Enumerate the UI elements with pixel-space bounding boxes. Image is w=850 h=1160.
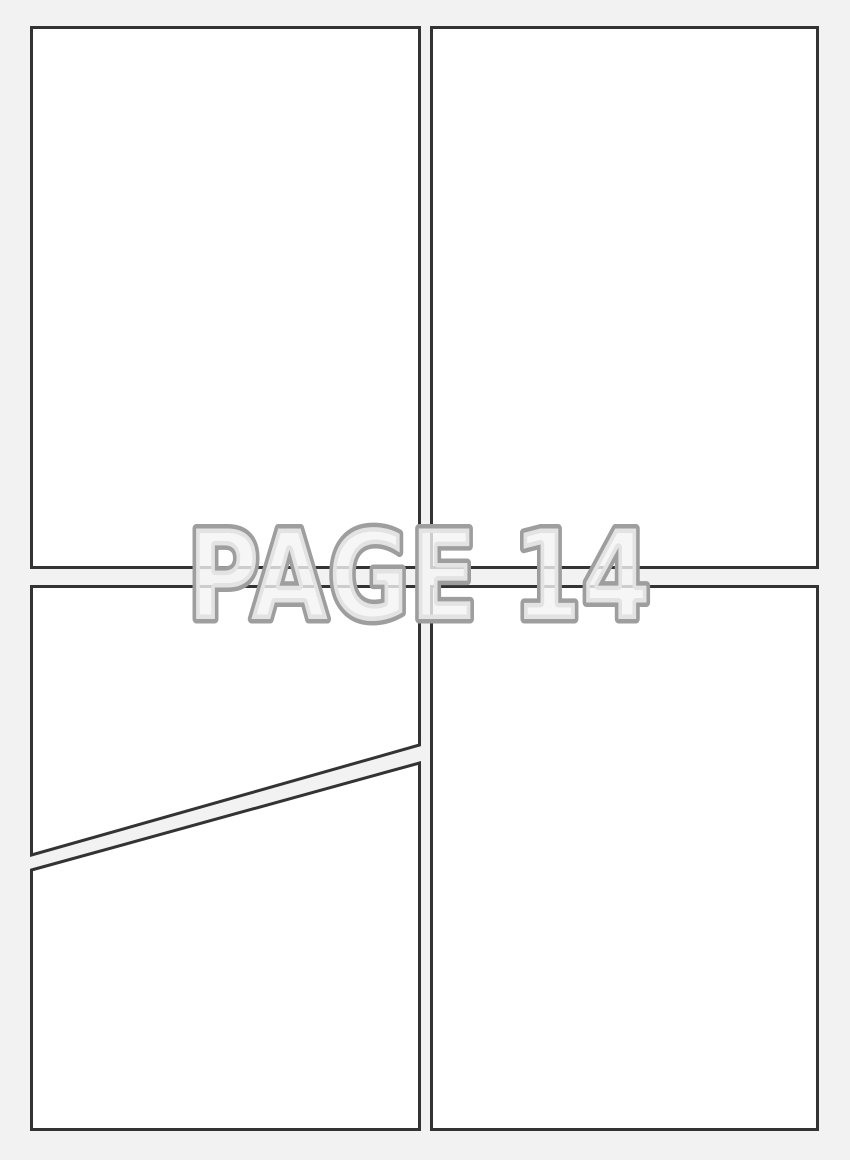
page-number-text: PAGE 14 xyxy=(187,505,651,649)
page-number-overlay: PAGE 14 xyxy=(0,470,850,690)
comic-page-template: PAGE 14 xyxy=(0,0,850,1160)
